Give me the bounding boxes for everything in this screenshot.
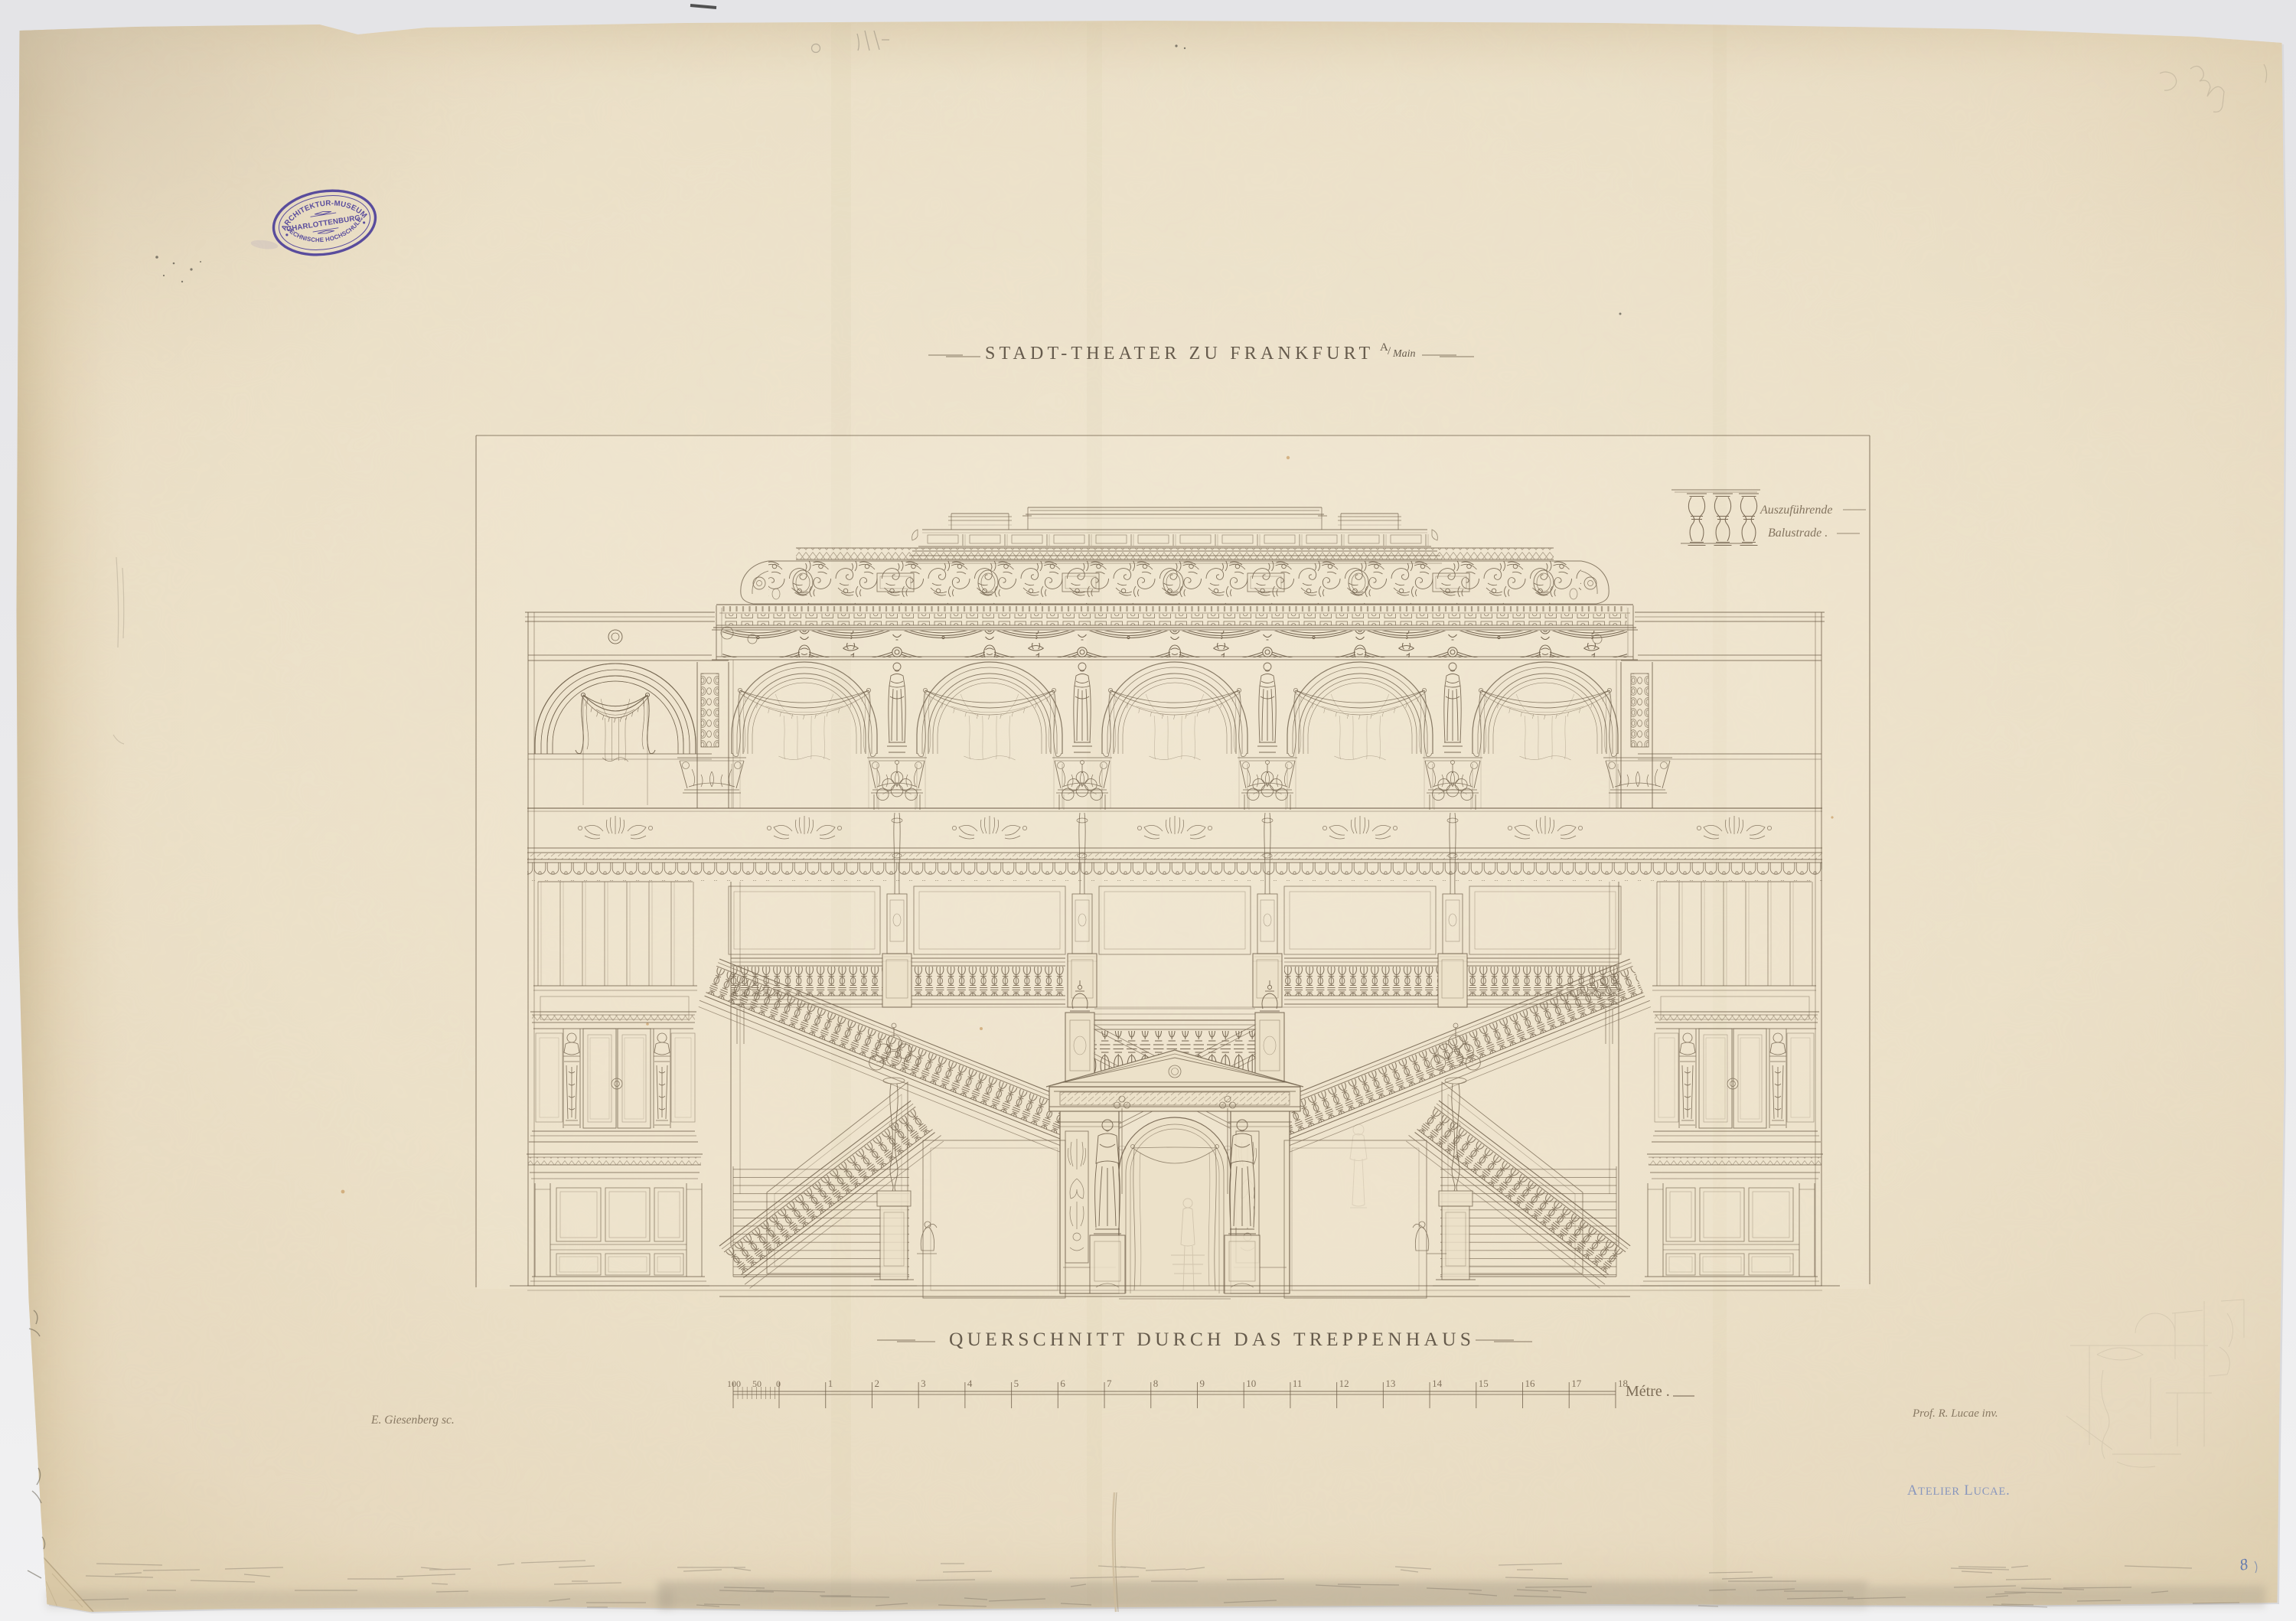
svg-text:3: 3 bbox=[921, 1378, 926, 1389]
svg-text:13: 13 bbox=[1385, 1378, 1395, 1389]
svg-text:15: 15 bbox=[1479, 1378, 1489, 1389]
svg-text:QUERSCHNITT DURCH DAS TREPP: QUERSCHNITT DURCH DAS TREPPENHAUS bbox=[949, 1328, 1475, 1350]
svg-text:2: 2 bbox=[874, 1378, 879, 1389]
svg-text:5: 5 bbox=[1014, 1378, 1019, 1389]
svg-text:50: 50 bbox=[752, 1378, 762, 1389]
svg-text:4: 4 bbox=[967, 1378, 973, 1389]
svg-text:17: 17 bbox=[1571, 1378, 1582, 1389]
svg-text:16: 16 bbox=[1525, 1378, 1536, 1389]
svg-text:7: 7 bbox=[1107, 1378, 1112, 1389]
svg-text:0: 0 bbox=[776, 1378, 781, 1389]
svg-text:Main: Main bbox=[1392, 348, 1416, 360]
svg-text:9: 9 bbox=[1199, 1378, 1205, 1389]
svg-text:11: 11 bbox=[1293, 1378, 1303, 1389]
svg-text:6: 6 bbox=[1060, 1378, 1065, 1389]
svg-text:Prof. R. Lucae inv.: Prof. R. Lucae inv. bbox=[1912, 1407, 1998, 1420]
svg-text:100: 100 bbox=[727, 1378, 741, 1389]
svg-text:10: 10 bbox=[1246, 1378, 1256, 1389]
svg-text:Auszuführende: Auszuführende bbox=[1760, 504, 1833, 517]
svg-text:14: 14 bbox=[1432, 1378, 1443, 1389]
svg-text:E. Giesenberg sc.: E. Giesenberg sc. bbox=[370, 1414, 455, 1427]
svg-text:8: 8 bbox=[1153, 1378, 1159, 1389]
svg-text:Métre .: Métre . bbox=[1626, 1383, 1670, 1400]
svg-text:Balustrade .: Balustrade . bbox=[1768, 527, 1828, 540]
svg-text:1: 1 bbox=[828, 1378, 833, 1389]
svg-text:STADT-THEATER ZU FRANKFURT: STADT-THEATER ZU FRANKFURT bbox=[985, 344, 1374, 364]
svg-text:12: 12 bbox=[1339, 1378, 1349, 1389]
svg-text:ATELIER LUCAE.: ATELIER LUCAE. bbox=[1907, 1483, 2011, 1499]
